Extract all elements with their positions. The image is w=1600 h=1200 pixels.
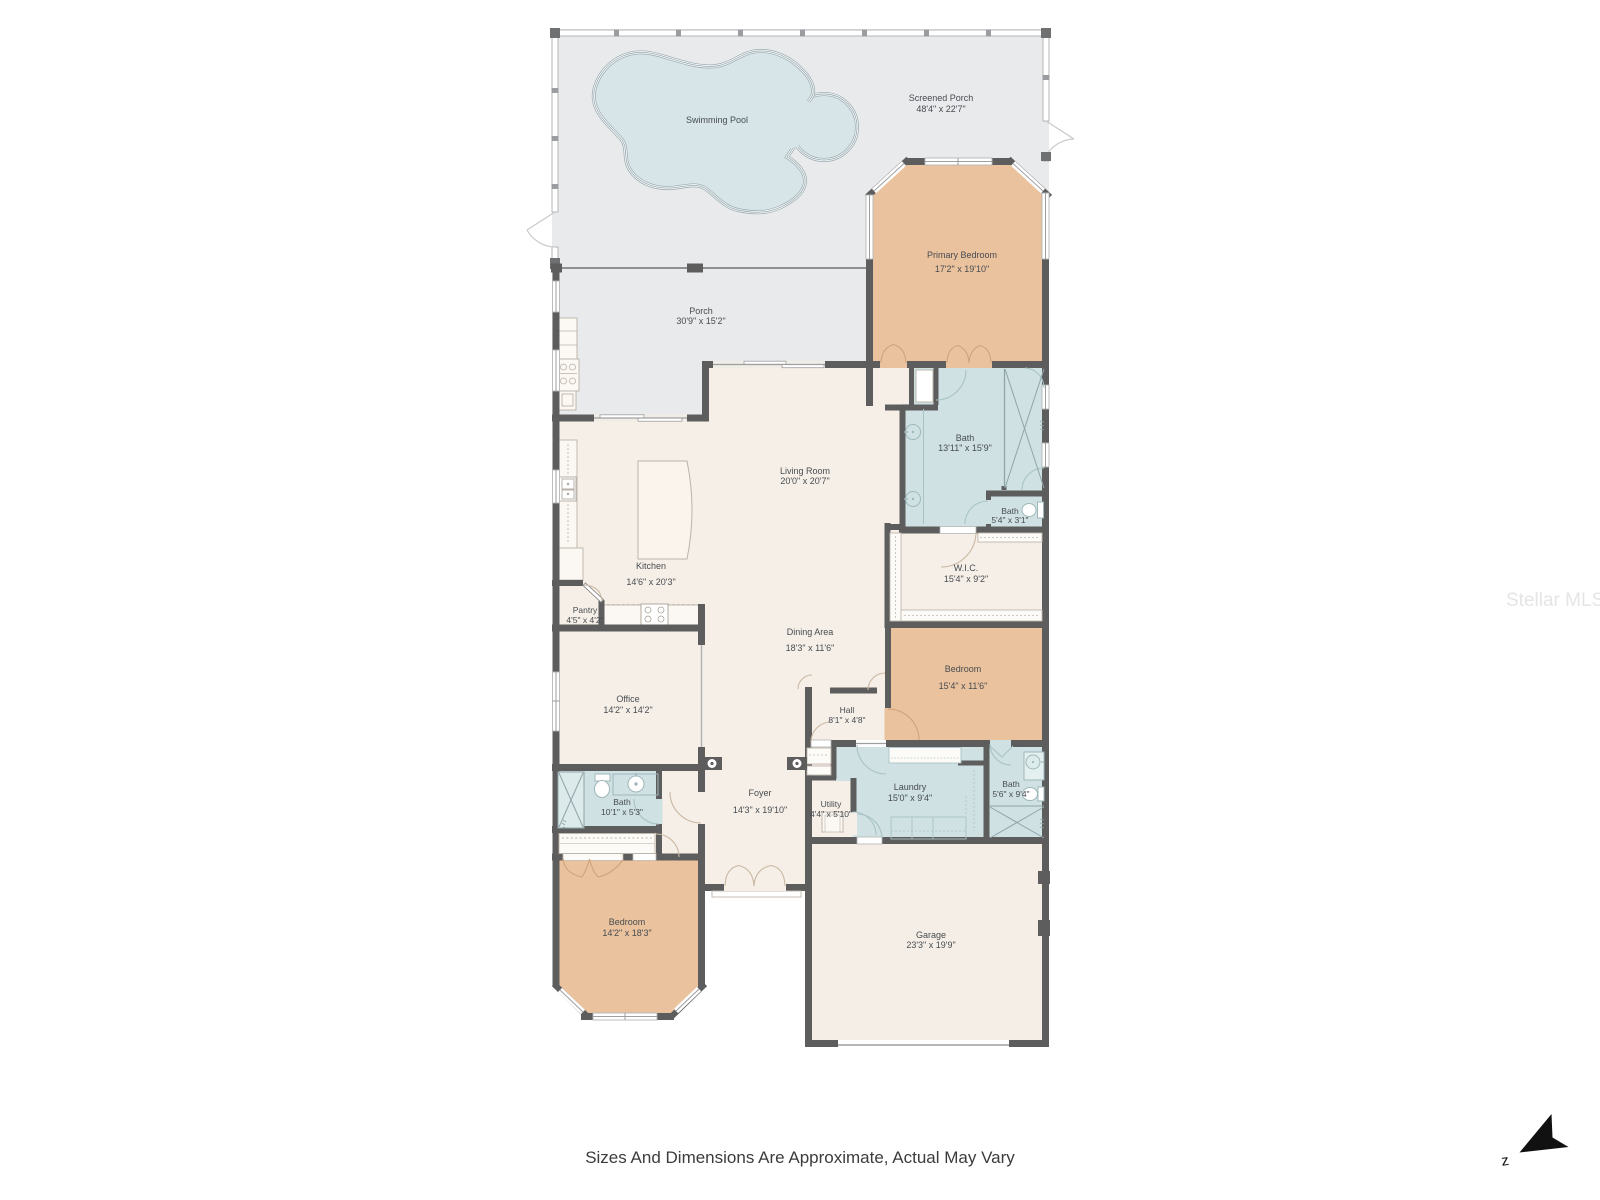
svg-text:Pantry: Pantry	[573, 605, 598, 615]
svg-text:15'4" x 9'2": 15'4" x 9'2"	[944, 574, 988, 584]
svg-text:Bath: Bath	[613, 797, 631, 807]
svg-text:Sizes And Dimensions Are Appro: Sizes And Dimensions Are Approximate, Ac…	[585, 1148, 1015, 1167]
svg-text:Laundry: Laundry	[894, 782, 927, 792]
svg-text:4'5" x 4'2": 4'5" x 4'2"	[566, 615, 603, 625]
svg-text:15'0" x 9'4": 15'0" x 9'4"	[888, 793, 932, 803]
svg-text:Bedroom: Bedroom	[945, 664, 982, 674]
svg-text:14'2" x 18'3": 14'2" x 18'3"	[602, 928, 651, 938]
svg-text:Swimming Pool: Swimming Pool	[686, 115, 748, 125]
svg-text:Living Room: Living Room	[780, 466, 830, 476]
svg-text:Stellar MLS: Stellar MLS	[1506, 590, 1600, 611]
svg-text:Porch: Porch	[689, 306, 713, 316]
svg-text:15'4" x 11'6": 15'4" x 11'6"	[939, 681, 988, 691]
svg-text:Dining Area: Dining Area	[787, 627, 834, 637]
svg-text:Office: Office	[616, 694, 639, 704]
svg-text:Bath: Bath	[1002, 779, 1020, 789]
svg-text:20'0" x 20'7": 20'0" x 20'7"	[780, 476, 829, 486]
svg-text:W.I.C.: W.I.C.	[954, 563, 979, 573]
svg-text:23'3" x 19'9": 23'3" x 19'9"	[906, 940, 955, 950]
svg-text:Bedroom: Bedroom	[609, 917, 646, 927]
svg-text:8'1" x 4'8": 8'1" x 4'8"	[828, 715, 865, 725]
svg-text:17'2" x 19'10": 17'2" x 19'10"	[935, 264, 989, 274]
svg-text:13'11" x 15'9": 13'11" x 15'9"	[938, 443, 992, 453]
svg-text:Hall: Hall	[840, 705, 855, 715]
svg-text:Bath: Bath	[956, 433, 975, 443]
svg-text:5'4" x 3'1": 5'4" x 3'1"	[991, 515, 1028, 525]
svg-text:Garage: Garage	[916, 930, 946, 940]
svg-text:Primary Bedroom: Primary Bedroom	[927, 250, 997, 260]
svg-text:5'6" x 9'4": 5'6" x 9'4"	[992, 789, 1029, 799]
svg-text:14'6" x 20'3": 14'6" x 20'3"	[626, 577, 675, 587]
svg-text:Utility: Utility	[821, 799, 843, 809]
svg-text:14'2" x 14'2": 14'2" x 14'2"	[603, 705, 652, 715]
svg-text:14'3" x 19'10": 14'3" x 19'10"	[733, 805, 787, 815]
svg-text:Screened Porch: Screened Porch	[909, 93, 974, 103]
svg-text:48'4" x 22'7": 48'4" x 22'7"	[916, 104, 965, 114]
svg-text:Foyer: Foyer	[748, 788, 771, 798]
svg-text:30'9" x 15'2": 30'9" x 15'2"	[676, 316, 725, 326]
svg-text:Kitchen: Kitchen	[636, 561, 666, 571]
svg-text:18'3" x 11'6": 18'3" x 11'6"	[786, 643, 835, 653]
svg-text:4'4" x 5'10": 4'4" x 5'10"	[810, 809, 852, 819]
svg-text:10'1" x 5'3": 10'1" x 5'3"	[601, 807, 643, 817]
